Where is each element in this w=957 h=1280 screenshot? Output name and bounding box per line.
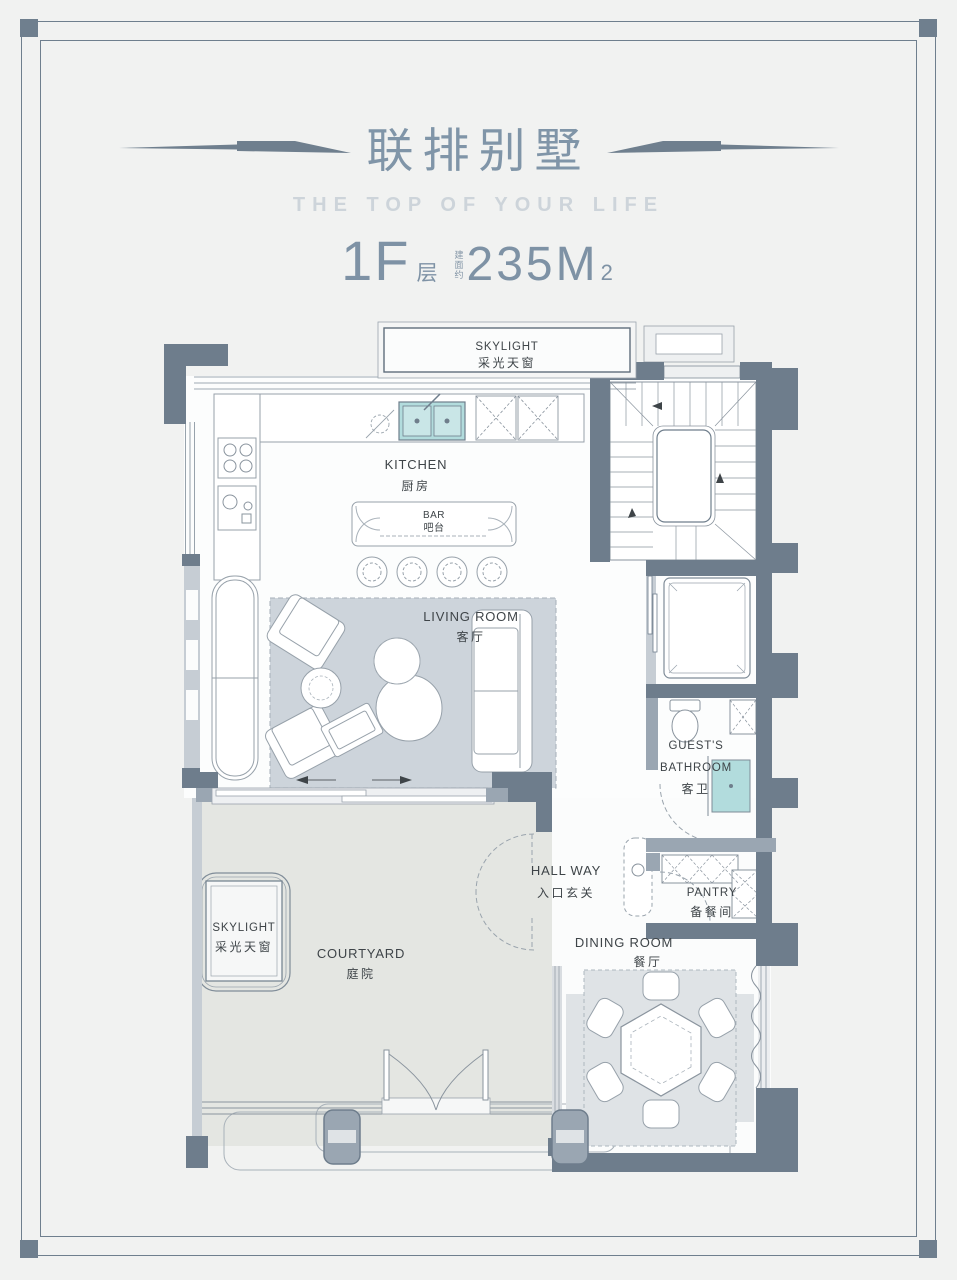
frame-corner-square	[20, 1240, 38, 1258]
kitchen-label-en: KITCHEN	[385, 457, 448, 472]
kitchen-label-cn: 厨房	[401, 478, 430, 493]
pantry-label-cn: 备餐间	[690, 904, 734, 919]
page-subtitle: THE TOP OF YOUR LIFE	[0, 194, 957, 217]
title-flourish-left	[119, 136, 351, 158]
toilet	[670, 700, 700, 742]
courtyard-skylight-label-cn: 采光天窗	[215, 940, 273, 954]
bar-label-cn: 吧台	[424, 521, 445, 534]
floor-number: 1F	[341, 228, 410, 293]
page-title: 联排别墅	[367, 112, 591, 181]
guest-bath-label-en2: BATHROOM	[660, 762, 732, 774]
frame-corner-square	[20, 19, 38, 37]
side-table	[301, 668, 341, 708]
area-note: 建面约	[454, 250, 463, 280]
hallway-label-en: HALL WAY	[531, 863, 601, 878]
bar-label-en: BAR	[423, 510, 445, 521]
living-room-label-en: LIVING ROOM	[423, 609, 518, 624]
area-value: 235M	[467, 237, 599, 292]
guest-bath-label-en1: GUEST'S	[668, 740, 723, 752]
frame-corner-square	[919, 1240, 937, 1258]
floor-area-line: 1F 层 建面约 235M 2	[0, 228, 957, 293]
hallway-label-cn: 入口玄关	[537, 885, 595, 900]
dining-room-label-en: DINING ROOM	[575, 935, 673, 950]
dining-room-label-cn: 餐厅	[633, 954, 662, 969]
shower-cabinet	[730, 700, 756, 734]
tall-cabinet	[212, 576, 258, 780]
staircase	[610, 382, 756, 560]
guest-bath-label-cn: 客卫	[681, 781, 710, 796]
courtyard-label-en: COURTYARD	[317, 946, 405, 961]
pantry-label-en: PANTRY	[687, 887, 737, 899]
floor-plan: SKYLIGHT 采光天窗 KITCHEN 厨房 BAR 吧台 LIVING R…	[156, 310, 804, 1178]
courtyard-label-cn: 庭院	[346, 966, 375, 981]
frame-corner-square	[919, 19, 937, 37]
skylight-top-label-cn: 采光天窗	[478, 356, 536, 370]
floor-suffix: 层	[417, 257, 440, 287]
header: 联排别墅	[0, 112, 957, 181]
title-flourish-right	[607, 136, 839, 158]
area-superscript: 2	[601, 260, 616, 286]
living-room-label-cn: 客厅	[456, 629, 485, 644]
skylight-top-label-en: SKYLIGHT	[475, 341, 538, 353]
courtyard-skylight-label-en: SKYLIGHT	[212, 922, 275, 934]
